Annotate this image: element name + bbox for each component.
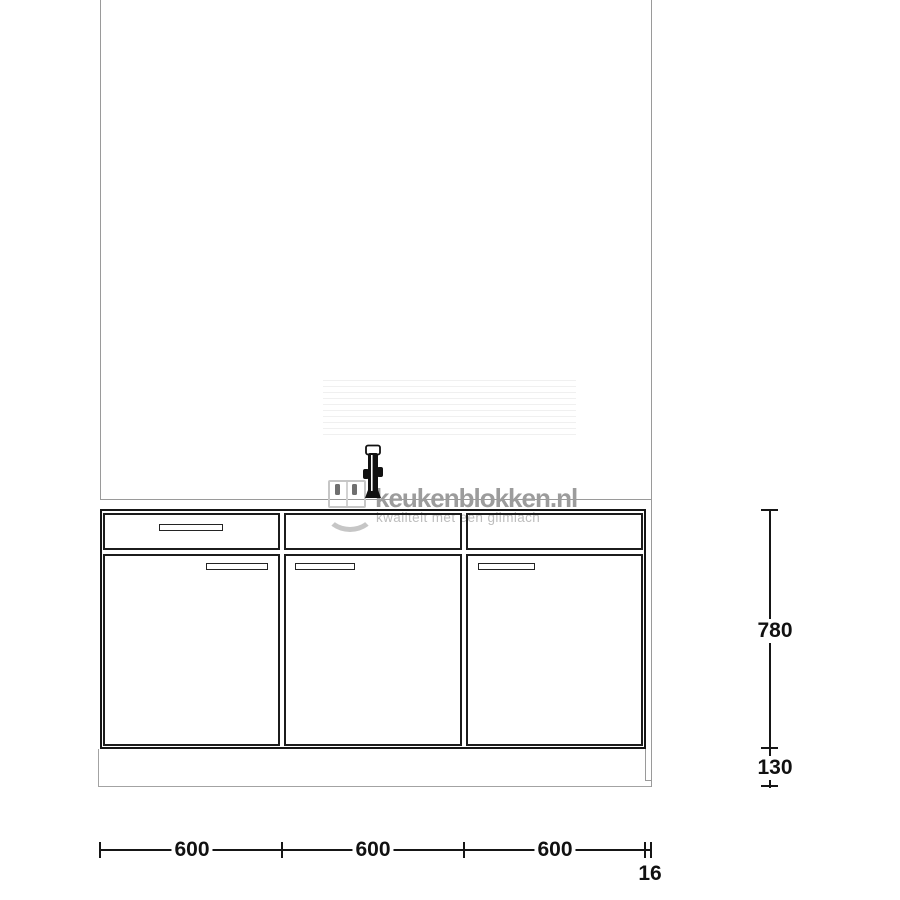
door-3-handle xyxy=(478,563,535,570)
dim-tick-w0 xyxy=(99,842,101,858)
plinth xyxy=(98,749,652,787)
dim-tick-plinth-top xyxy=(761,747,778,749)
door-2 xyxy=(284,554,462,746)
blank-front-3 xyxy=(466,513,643,550)
dim-label-cabinet-height: 780 xyxy=(754,619,795,643)
dim-label-section1-width: 600 xyxy=(171,838,212,862)
door-1-handle xyxy=(206,563,268,570)
dim-tick-w3 xyxy=(644,842,646,858)
drawer-front-1 xyxy=(103,513,280,550)
drawer-1-handle xyxy=(159,524,223,531)
dim-label-section2-width: 600 xyxy=(352,838,393,862)
dim-tick-bottom xyxy=(761,785,778,787)
side-panel-outer-edge xyxy=(651,500,653,787)
dim-tick-w1 xyxy=(281,842,283,858)
dim-tick-w2 xyxy=(463,842,465,858)
dim-label-section3-width: 600 xyxy=(534,838,575,862)
dim-label-plinth-height: 130 xyxy=(754,756,795,780)
door-1 xyxy=(103,554,280,746)
faint-artifact-stripes xyxy=(323,380,576,438)
dim-tick-top xyxy=(761,509,778,511)
kitchen-unit-technical-drawing: keukenblokken.nl kwaliteit met een gliml… xyxy=(0,0,900,900)
side-panel-inner-edge xyxy=(645,749,646,781)
side-panel-foot-line xyxy=(645,780,652,781)
door-2-handle xyxy=(295,563,355,570)
dim-tick-w4-side-panel xyxy=(650,842,652,858)
watermark-logo-eye-left xyxy=(335,484,340,495)
faucet-icon xyxy=(356,441,386,501)
door-3 xyxy=(466,554,643,746)
dim-label-side-panel-thickness: 16 xyxy=(635,862,664,886)
sink-blank-front-2 xyxy=(284,513,462,550)
